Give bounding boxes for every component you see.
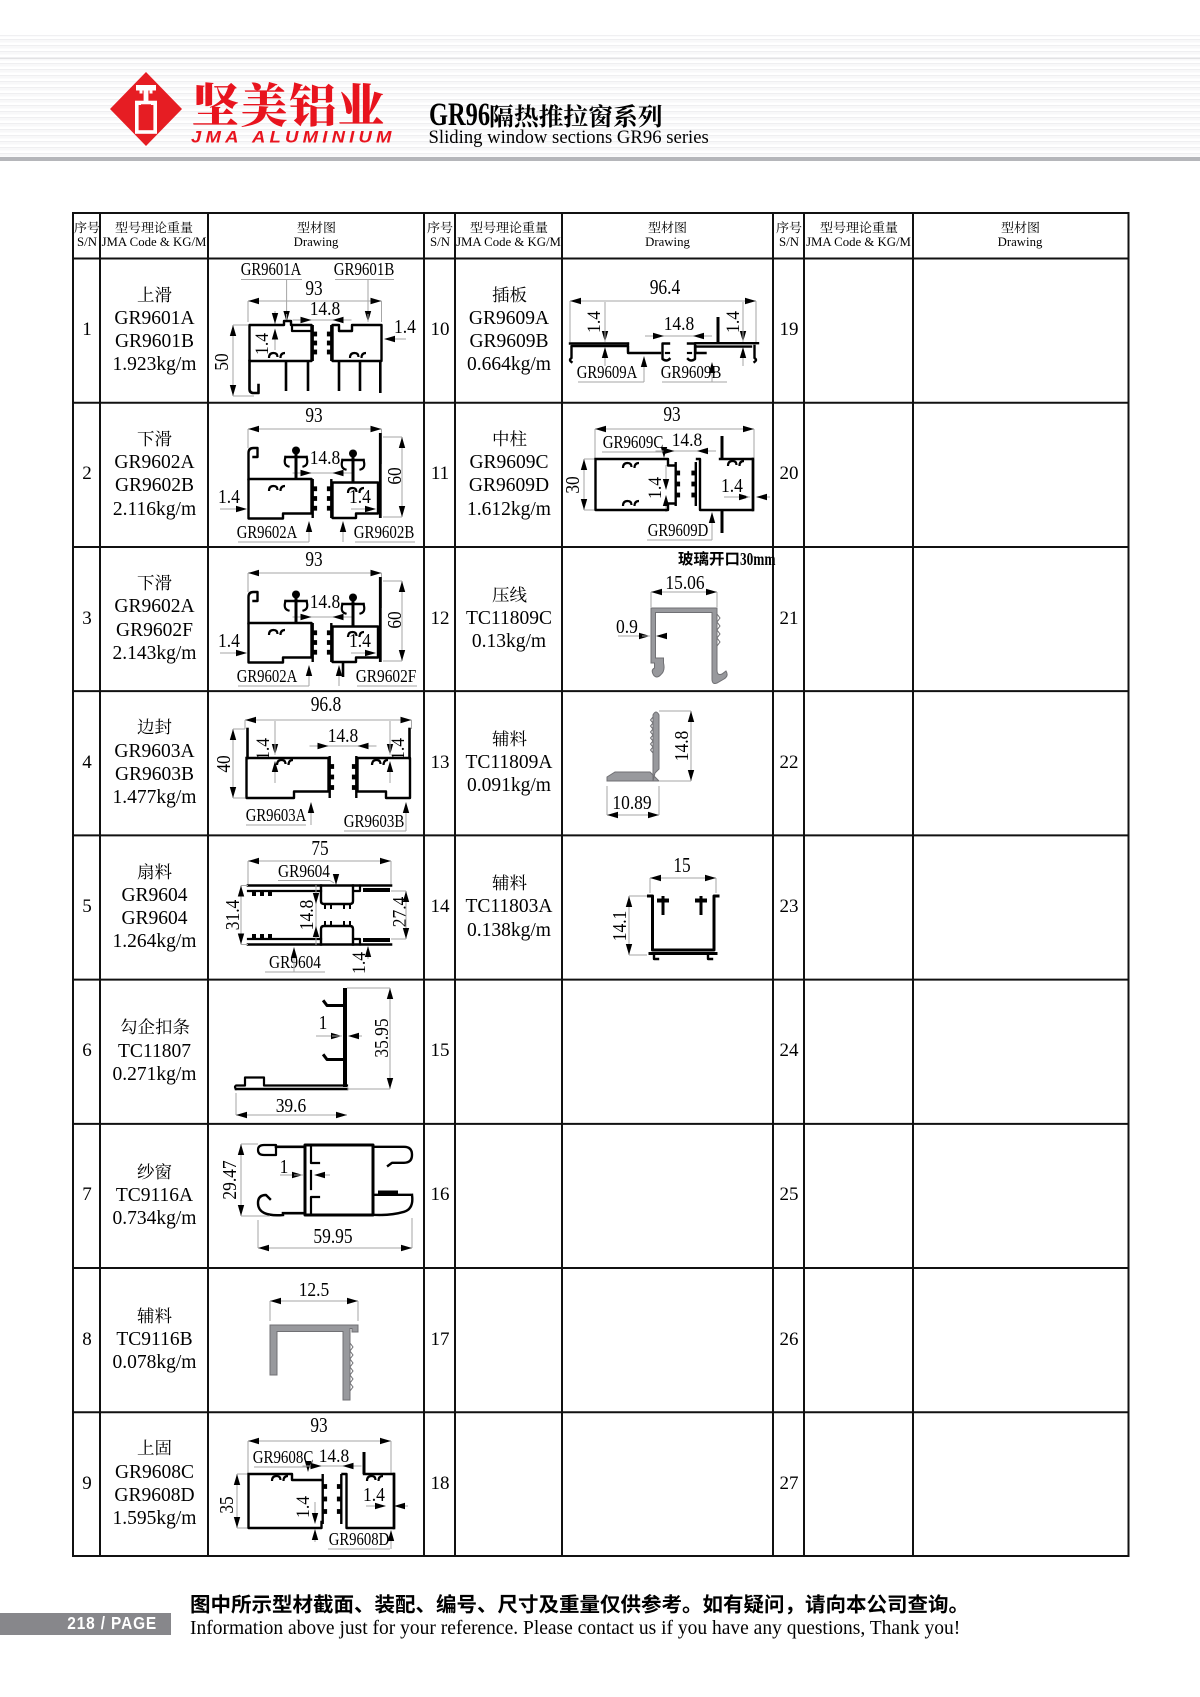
svg-text:12.5: 12.5	[299, 1279, 330, 1301]
svg-text:30: 30	[562, 477, 584, 494]
svg-text:GR9604: GR9604	[278, 861, 330, 881]
svg-text:93: 93	[305, 403, 322, 427]
svg-text:40: 40	[213, 755, 235, 772]
svg-text:93: 93	[310, 1413, 327, 1437]
svg-text:14.8: 14.8	[328, 725, 359, 747]
svg-text:1.4: 1.4	[723, 311, 744, 333]
svg-text:GR9608D: GR9608D	[329, 1529, 390, 1549]
svg-text:GR9602A: GR9602A	[237, 666, 298, 686]
svg-text:15.06: 15.06	[665, 572, 704, 594]
svg-text:14.1: 14.1	[609, 911, 631, 942]
svg-text:GR9602F: GR9602F	[356, 666, 417, 686]
svg-text:GR9603A: GR9603A	[246, 805, 307, 825]
svg-text:1.4: 1.4	[218, 486, 240, 508]
svg-text:1.4: 1.4	[721, 475, 743, 497]
svg-text:1.4: 1.4	[293, 1495, 314, 1517]
svg-text:14.8: 14.8	[319, 1446, 350, 1467]
svg-text:35: 35	[216, 1496, 238, 1513]
svg-text:50: 50	[211, 353, 233, 370]
svg-text:29.47: 29.47	[219, 1161, 241, 1200]
svg-text:1.4: 1.4	[584, 311, 605, 333]
svg-text:GR9609D: GR9609D	[648, 520, 709, 540]
svg-text:GR9609C: GR9609C	[603, 432, 664, 452]
svg-text:14.8: 14.8	[296, 900, 318, 931]
svg-text:1.4: 1.4	[252, 333, 273, 355]
svg-text:1.4: 1.4	[253, 737, 274, 759]
svg-text:GR9602A: GR9602A	[237, 522, 298, 542]
svg-text:96.8: 96.8	[311, 692, 342, 716]
svg-text:75: 75	[311, 836, 328, 860]
svg-text:93: 93	[663, 402, 680, 426]
svg-text:14.8: 14.8	[310, 298, 341, 320]
svg-text:14.8: 14.8	[672, 430, 703, 451]
svg-text:39.6: 39.6	[276, 1095, 307, 1117]
svg-text:0.9: 0.9	[616, 616, 638, 638]
svg-text:1.4: 1.4	[218, 630, 240, 652]
svg-text:GR9603B: GR9603B	[344, 811, 405, 831]
svg-text:14.8: 14.8	[310, 591, 341, 613]
svg-text:1.4: 1.4	[645, 477, 666, 499]
svg-text:93: 93	[305, 276, 322, 300]
svg-text:GR9608C: GR9608C	[253, 1447, 314, 1467]
svg-text:96.4: 96.4	[650, 275, 681, 299]
svg-text:15: 15	[673, 853, 690, 877]
svg-text:1.4: 1.4	[363, 1484, 385, 1506]
svg-text:GR9609A: GR9609A	[577, 362, 638, 382]
svg-text:10.89: 10.89	[612, 792, 651, 814]
svg-text:14.8: 14.8	[310, 447, 341, 469]
svg-text:GR9601A: GR9601A	[241, 259, 302, 279]
svg-text:1.4: 1.4	[394, 316, 416, 338]
svg-text:14.8: 14.8	[664, 313, 695, 335]
svg-text:GR9602B: GR9602B	[354, 522, 415, 542]
svg-text:93: 93	[305, 547, 322, 571]
svg-text:14.8: 14.8	[671, 730, 693, 761]
svg-text:60: 60	[384, 612, 406, 629]
svg-text:60: 60	[384, 468, 406, 485]
svg-text:GR9601B: GR9601B	[334, 259, 395, 279]
svg-text:59.95: 59.95	[313, 1224, 352, 1248]
svg-text:1: 1	[319, 1012, 328, 1034]
